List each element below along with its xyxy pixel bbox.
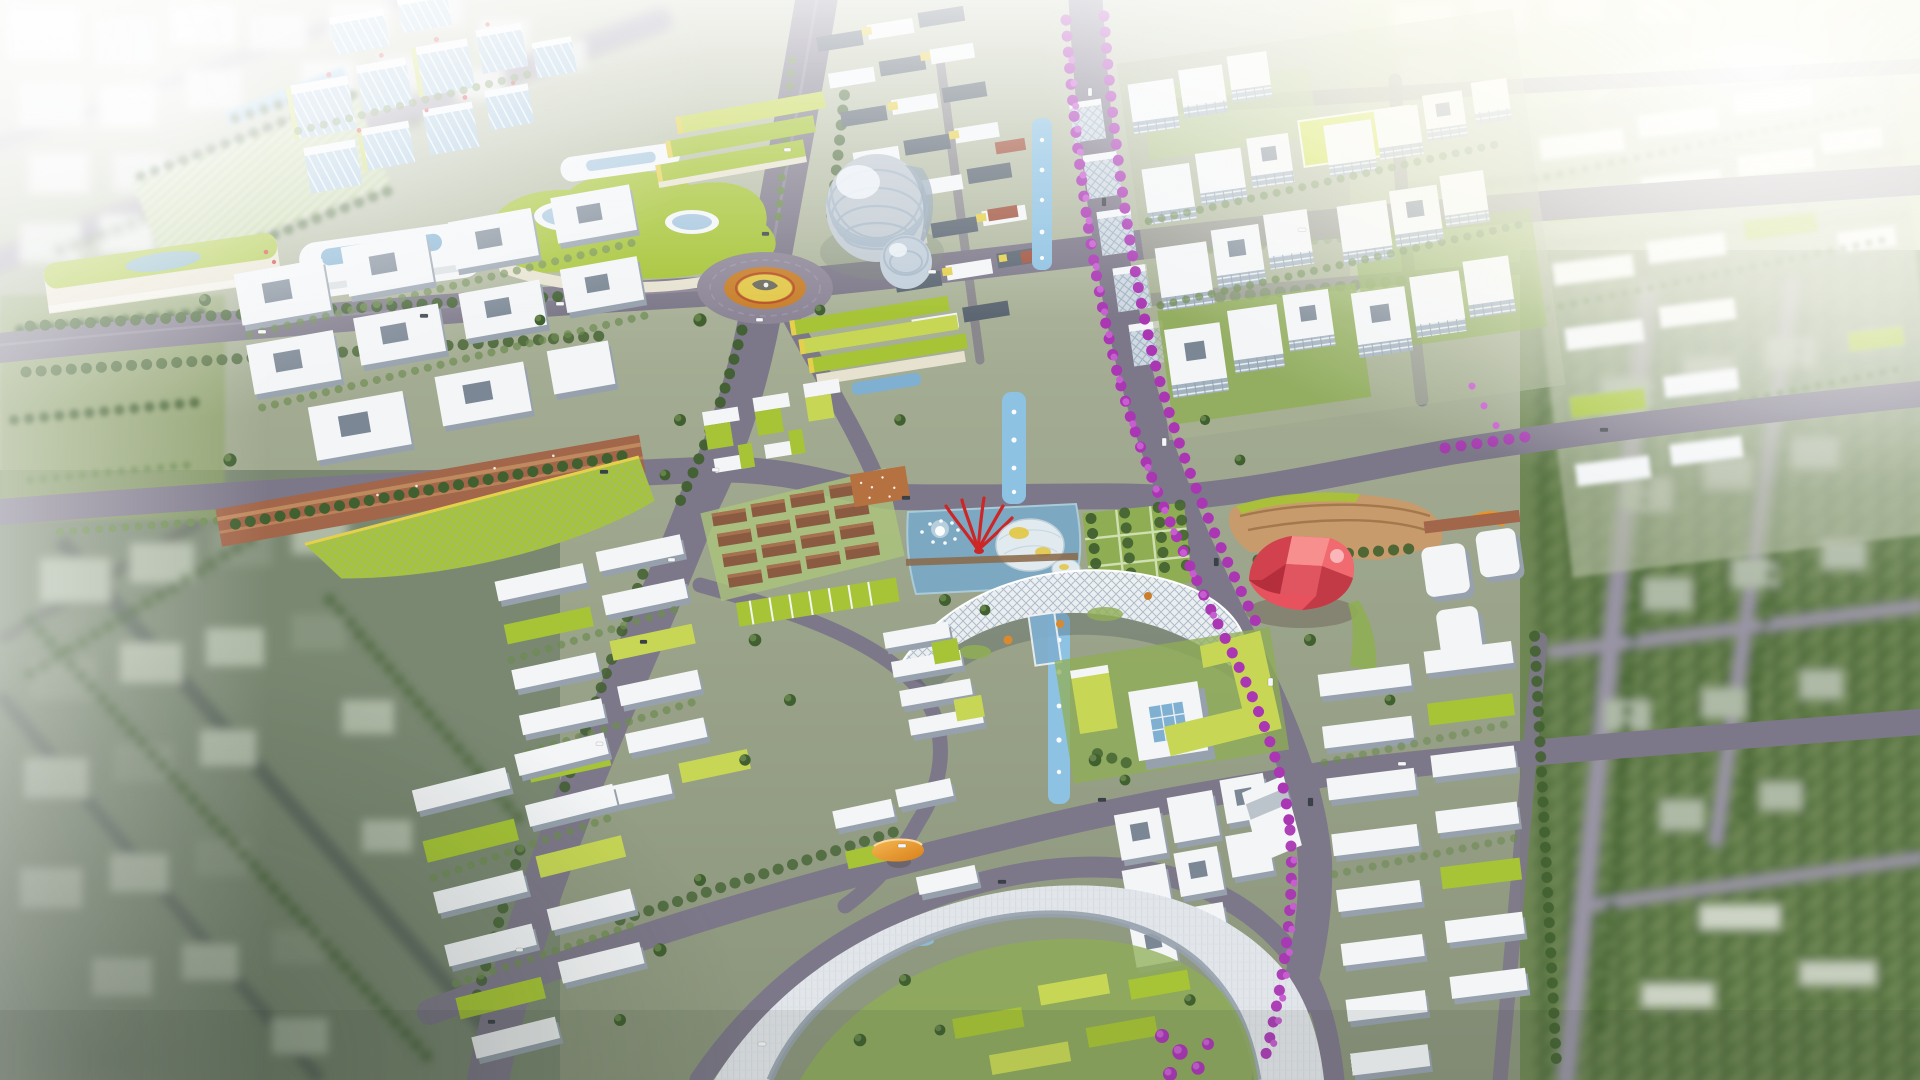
canopy-atrium bbox=[1029, 612, 1062, 665]
red-faceted-dome-theater bbox=[1246, 536, 1358, 628]
rendering-canvas bbox=[0, 0, 1920, 1080]
aerial-city-rendering bbox=[0, 0, 1920, 1080]
